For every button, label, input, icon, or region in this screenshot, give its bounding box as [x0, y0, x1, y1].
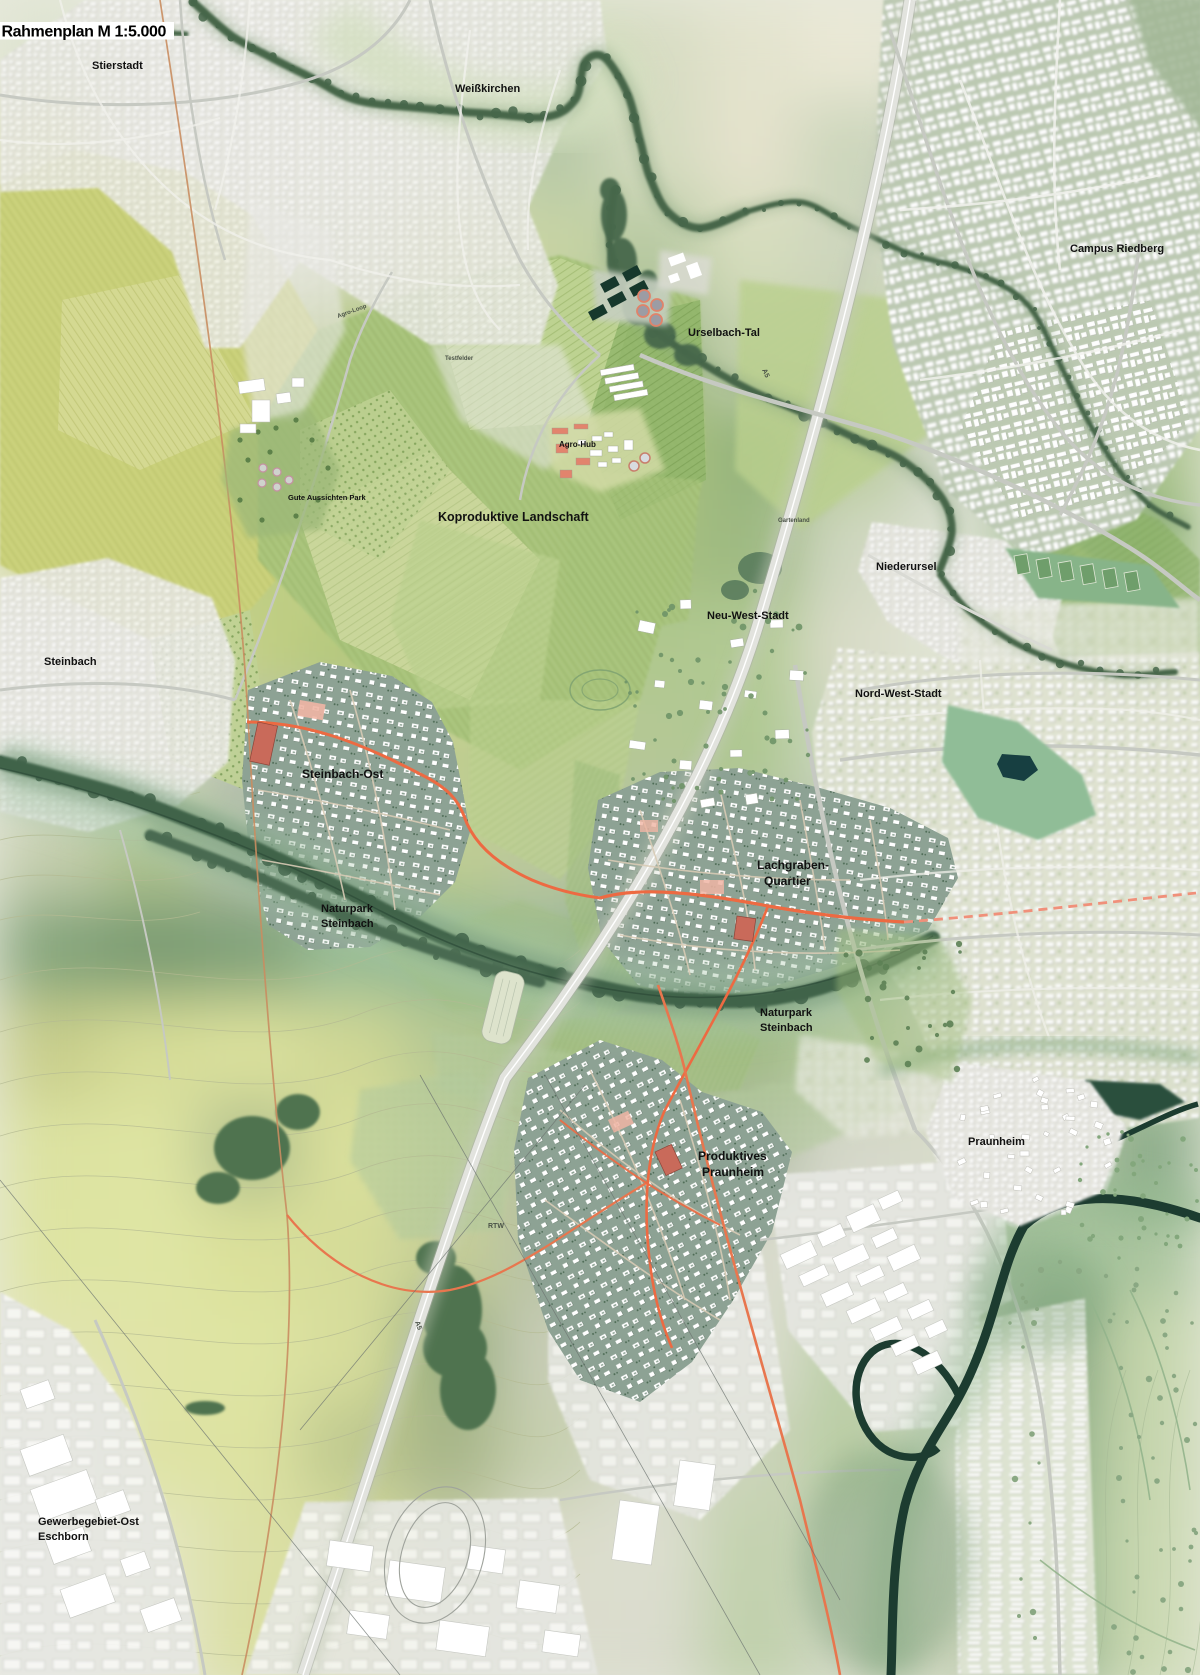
svg-text:Lachgraben-: Lachgraben-	[757, 858, 829, 872]
svg-text:Koproduktive Landschaft: Koproduktive Landschaft	[438, 510, 590, 524]
svg-text:Neu-West-Stadt: Neu-West-Stadt	[707, 610, 789, 622]
svg-text:Campus Riedberg: Campus Riedberg	[1070, 243, 1164, 255]
svg-text:Steinbach: Steinbach	[44, 656, 97, 668]
svg-text:Agro-Hub: Agro-Hub	[559, 440, 596, 449]
svg-text:Nord-West-Stadt: Nord-West-Stadt	[855, 688, 942, 700]
svg-text:Gewerbegebiet-Ost: Gewerbegebiet-Ost	[38, 1516, 139, 1528]
svg-text:Steinbach-Ost: Steinbach-Ost	[302, 767, 383, 781]
svg-text:Eschborn: Eschborn	[38, 1531, 89, 1543]
svg-text:Gute Aussichten Park: Gute Aussichten Park	[288, 493, 366, 502]
svg-text:Steinbach: Steinbach	[321, 918, 374, 930]
svg-text:Produktives: Produktives	[698, 1149, 767, 1163]
svg-text:Rahmenplan M 1:5.000: Rahmenplan M 1:5.000	[2, 23, 167, 40]
svg-text:Niederursel: Niederursel	[876, 561, 937, 573]
svg-text:Gartenland: Gartenland	[778, 518, 810, 524]
svg-text:Testfelder: Testfelder	[445, 356, 474, 362]
svg-text:Weißkirchen: Weißkirchen	[455, 83, 520, 95]
svg-text:Naturpark: Naturpark	[321, 903, 374, 915]
svg-text:Urselbach-Tal: Urselbach-Tal	[688, 327, 760, 339]
svg-text:Praunheim: Praunheim	[702, 1165, 764, 1179]
svg-text:Steinbach: Steinbach	[760, 1022, 813, 1034]
svg-text:Stierstadt: Stierstadt	[92, 60, 143, 72]
svg-text:Quartier: Quartier	[764, 874, 811, 888]
svg-text:Praunheim: Praunheim	[968, 1136, 1025, 1148]
svg-text:Naturpark: Naturpark	[760, 1007, 813, 1019]
svg-text:RTW: RTW	[488, 1223, 504, 1230]
